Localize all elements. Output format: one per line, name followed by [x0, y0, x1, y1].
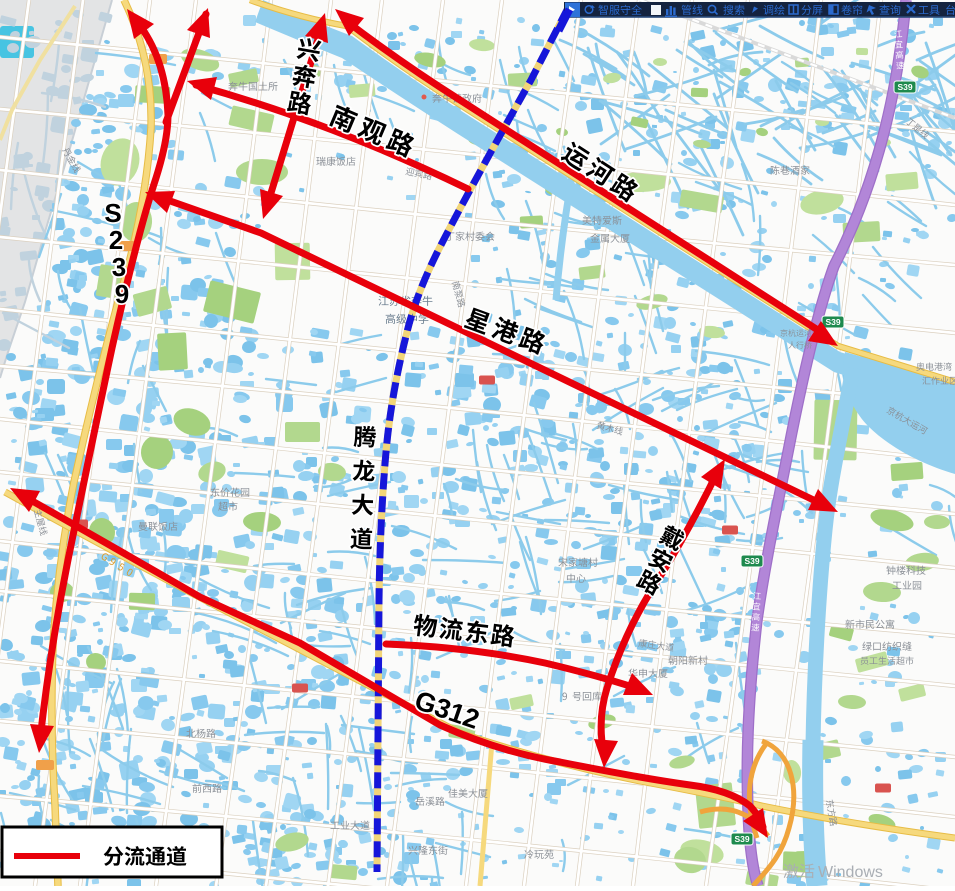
- svg-text:9: 9: [115, 279, 129, 309]
- svg-text:S39: S39: [897, 82, 912, 92]
- svg-text:2: 2: [109, 225, 123, 255]
- svg-text:S39: S39: [825, 317, 840, 327]
- svg-text:Windows: Windows: [818, 864, 883, 881]
- svg-text:S39: S39: [744, 556, 759, 566]
- svg-text:S39: S39: [734, 834, 749, 844]
- svg-text:3: 3: [112, 252, 126, 282]
- svg-text:S: S: [104, 198, 121, 228]
